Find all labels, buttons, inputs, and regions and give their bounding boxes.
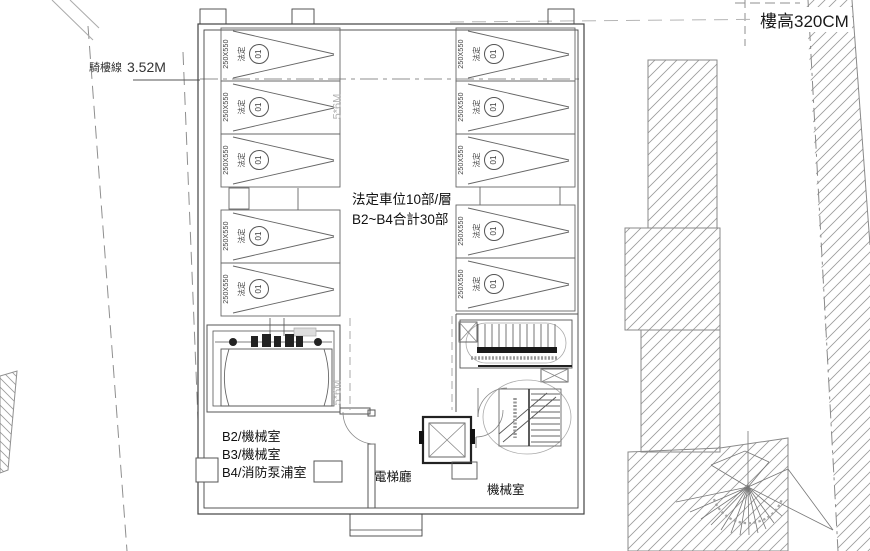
stall-number: 01 bbox=[485, 222, 503, 240]
stall-type-label: 法定 bbox=[237, 266, 247, 312]
stall-size-label: 250X550 bbox=[457, 137, 467, 183]
stall-size-label: 250X550 bbox=[457, 84, 467, 130]
stall-type-label: 法定 bbox=[472, 261, 482, 307]
stall-type-label: 法定 bbox=[472, 137, 482, 183]
stall-size-label: 250X550 bbox=[222, 213, 232, 259]
parking-count-note: 法定車位10部/層 B2~B4合計30部 bbox=[352, 190, 452, 229]
neighbor-buildings bbox=[625, 0, 870, 551]
stall-number-circle: 01 bbox=[484, 97, 504, 117]
stall-number: 01 bbox=[250, 98, 268, 116]
stall-number-circle: 01 bbox=[484, 274, 504, 294]
stall-number: 01 bbox=[250, 45, 268, 63]
stall-size-label: 250X550 bbox=[222, 31, 232, 77]
arcade-line-label: 騎樓線 bbox=[89, 59, 122, 75]
stall-number-circle: 01 bbox=[484, 221, 504, 241]
parking-stall: 250X550 法定 01 bbox=[456, 134, 575, 187]
stall-size-label: 250X550 bbox=[222, 84, 232, 130]
water-tank bbox=[207, 318, 340, 412]
stall-number-circle: 01 bbox=[484, 44, 504, 64]
stall-number-circle: 01 bbox=[249, 44, 269, 64]
stall-number: 01 bbox=[485, 45, 503, 63]
stall-type-label: 法定 bbox=[472, 84, 482, 130]
parking-stall: 250X550 法定 01 bbox=[221, 263, 340, 316]
floor-plan-drawing bbox=[0, 0, 870, 551]
stall-number: 01 bbox=[250, 151, 268, 169]
stall-size-label: 250X550 bbox=[222, 266, 232, 312]
stall-number: 01 bbox=[250, 227, 268, 245]
floor-height-label: 樓高320CM bbox=[757, 7, 852, 32]
parking-count-line2: B2~B4合計30部 bbox=[352, 210, 452, 230]
parking-stall: 250X550 法定 01 bbox=[221, 210, 340, 263]
stall-number-circle: 01 bbox=[249, 150, 269, 170]
stall-type-label: 法定 bbox=[237, 213, 247, 259]
stall-type-label: 法定 bbox=[472, 31, 482, 77]
elevator-shaft bbox=[340, 408, 503, 508]
stall-type-label: 法定 bbox=[237, 84, 247, 130]
parking-count-line1: 法定車位10部/層 bbox=[352, 190, 452, 210]
parking-stall: 250X550 法定 01 bbox=[456, 205, 575, 258]
stall-number-circle: 01 bbox=[484, 150, 504, 170]
parking-stall: 250X550 法定 01 bbox=[456, 258, 575, 311]
room-b2-label: B2/機械室 bbox=[222, 428, 307, 446]
room-b3-label: B3/機械室 bbox=[222, 446, 307, 464]
machine-room-label: 機械室 bbox=[487, 479, 525, 498]
room-legend: B2/機械室 B3/機械室 B4/消防泵浦室 bbox=[222, 428, 307, 482]
parking-stall: 250X550 法定 01 bbox=[456, 81, 575, 134]
elevator-hall-label: 電梯廳 bbox=[374, 466, 412, 485]
stall-number: 01 bbox=[485, 275, 503, 293]
stair-lower bbox=[478, 380, 571, 454]
stall-size-label: 250X550 bbox=[457, 261, 467, 307]
parking-stall: 250X550 法定 01 bbox=[221, 28, 340, 81]
stall-number: 01 bbox=[485, 98, 503, 116]
stair-upper bbox=[459, 320, 572, 382]
arcade-line-dimension: 3.52M bbox=[127, 59, 166, 75]
room-b4-label: B4/消防泵浦室 bbox=[222, 464, 307, 482]
stall-type-label: 法定 bbox=[472, 208, 482, 254]
aisle-dimension-bottom: 5*6M bbox=[332, 370, 345, 416]
stall-size-label: 250X550 bbox=[457, 31, 467, 77]
stall-size-label: 250X550 bbox=[457, 208, 467, 254]
stall-number-circle: 01 bbox=[249, 97, 269, 117]
stall-size-label: 250X550 bbox=[222, 137, 232, 183]
arcade-line-annotation: 騎樓線 3.52M bbox=[89, 59, 166, 75]
parking-stall: 250X550 法定 01 bbox=[456, 28, 575, 81]
parking-stall: 250X550 法定 01 bbox=[221, 81, 340, 134]
stall-number-circle: 01 bbox=[249, 279, 269, 299]
stall-number: 01 bbox=[250, 280, 268, 298]
floor-plan-canvas: 樓高320CM 騎樓線 3.52M 法定車位10部/層 B2~B4合計30部 B… bbox=[0, 0, 870, 551]
stall-type-label: 法定 bbox=[237, 137, 247, 183]
drive-aisle-dashes bbox=[350, 316, 452, 410]
stall-number-circle: 01 bbox=[249, 226, 269, 246]
parking-stall: 250X550 法定 01 bbox=[221, 134, 340, 187]
stall-type-label: 法定 bbox=[237, 31, 247, 77]
stall-number: 01 bbox=[485, 151, 503, 169]
